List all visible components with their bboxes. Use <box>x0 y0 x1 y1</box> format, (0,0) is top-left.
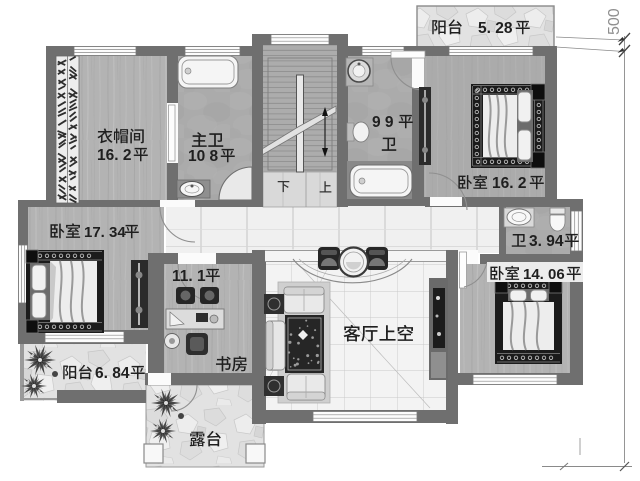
svg-text:11. 1: 11. 1 <box>172 268 206 285</box>
svg-text:9 9: 9 9 <box>372 114 394 131</box>
svg-text:17. 34: 17. 34 <box>84 224 126 241</box>
svg-text:14. 06: 14. 06 <box>523 266 565 283</box>
svg-text:3. 94: 3. 94 <box>529 233 564 250</box>
svg-text:16. 2: 16. 2 <box>492 175 526 192</box>
svg-text:500: 500 <box>606 8 623 35</box>
svg-text:6. 84: 6. 84 <box>95 365 130 382</box>
svg-text:16. 2: 16. 2 <box>97 147 131 164</box>
svg-text:10 8: 10 8 <box>188 148 219 165</box>
svg-text:5. 28: 5. 28 <box>478 20 513 37</box>
